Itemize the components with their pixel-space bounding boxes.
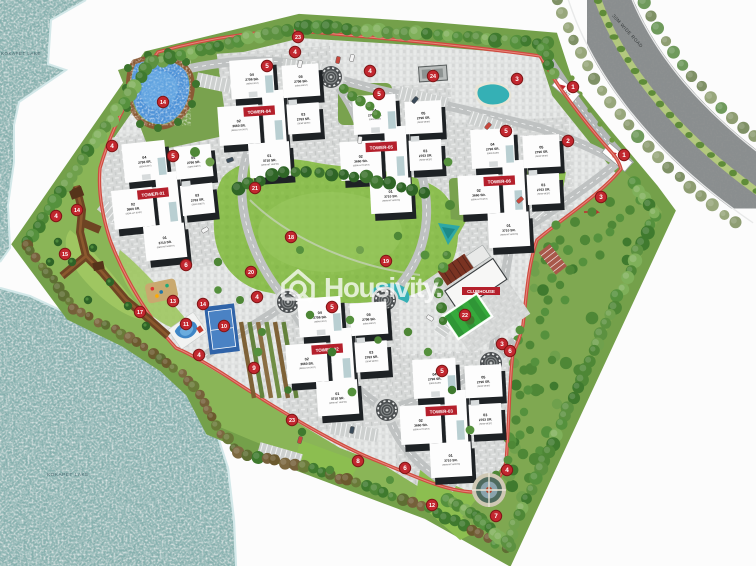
svg-text:14: 14 <box>160 100 166 106</box>
svg-text:2763 SR.: 2763 SR. <box>479 417 493 422</box>
svg-text:4: 4 <box>54 213 58 220</box>
svg-text:2: 2 <box>566 138 570 145</box>
svg-text:11: 11 <box>183 322 189 328</box>
svg-text:19: 19 <box>383 259 389 265</box>
svg-text:2796 SR.: 2796 SR. <box>417 116 431 121</box>
svg-text:3710 SR.: 3710 SR. <box>502 228 516 233</box>
svg-text:2763 SR.: 2763 SR. <box>419 153 433 158</box>
svg-text:5: 5 <box>171 153 175 160</box>
svg-text:22: 22 <box>462 313 468 319</box>
svg-text:CLUBHOUSE: CLUBHOUSE <box>467 289 495 294</box>
svg-text:2796 SR.: 2796 SR. <box>428 377 442 382</box>
svg-text:13: 13 <box>170 299 176 305</box>
svg-text:5: 5 <box>377 91 381 98</box>
svg-text:2796 SR.: 2796 SR. <box>486 147 500 152</box>
svg-text:3660 SR.: 3660 SR. <box>354 159 368 164</box>
svg-text:7: 7 <box>494 513 498 520</box>
svg-text:3: 3 <box>515 76 519 83</box>
svg-text:4: 4 <box>368 68 372 75</box>
svg-text:4: 4 <box>197 352 201 359</box>
svg-text:2796 SR.: 2796 SR. <box>477 380 491 385</box>
svg-text:14: 14 <box>74 208 80 214</box>
svg-text:3660 SR.: 3660 SR. <box>414 423 428 428</box>
svg-text:5: 5 <box>330 304 334 311</box>
svg-text:1: 1 <box>622 152 626 159</box>
svg-text:5: 5 <box>440 368 444 375</box>
svg-text:(SEMI EAST): (SEMI EAST) <box>487 151 500 155</box>
svg-text:8: 8 <box>356 458 360 465</box>
svg-text:24: 24 <box>430 74 436 80</box>
svg-text:KOKAPET LAKE: KOKAPET LAKE <box>47 472 89 477</box>
svg-text:5: 5 <box>504 128 508 135</box>
svg-text:18: 18 <box>288 235 294 241</box>
svg-text:23: 23 <box>295 35 301 41</box>
svg-text:21: 21 <box>252 186 258 192</box>
svg-text:20: 20 <box>248 270 254 276</box>
svg-text:3710 SR.: 3710 SR. <box>444 458 458 463</box>
svg-text:4: 4 <box>255 294 259 301</box>
svg-text:3: 3 <box>500 341 504 348</box>
svg-text:3660 SR.: 3660 SR. <box>472 193 486 198</box>
svg-text:6: 6 <box>508 348 512 355</box>
svg-text:6: 6 <box>403 465 407 472</box>
svg-text:(SEMI EAST): (SEMI EAST) <box>429 381 442 385</box>
svg-text:10: 10 <box>221 324 227 330</box>
svg-text:6: 6 <box>184 262 188 269</box>
svg-text:2763 SR.: 2763 SR. <box>537 187 551 192</box>
svg-text:1: 1 <box>571 84 575 91</box>
svg-text:4: 4 <box>110 143 114 150</box>
svg-text:12: 12 <box>429 503 435 509</box>
svg-text:3710 SR.: 3710 SR. <box>384 194 398 199</box>
svg-text:4: 4 <box>293 49 297 56</box>
svg-text:3: 3 <box>599 194 603 201</box>
svg-text:2796 SR.: 2796 SR. <box>535 150 549 155</box>
svg-text:23: 23 <box>289 418 295 424</box>
svg-text:9: 9 <box>252 365 256 372</box>
svg-text:4: 4 <box>505 467 509 474</box>
svg-text:5: 5 <box>265 63 269 70</box>
svg-text:17: 17 <box>137 310 143 316</box>
svg-text:Housivity.: Housivity. <box>324 272 442 303</box>
svg-text:15: 15 <box>62 252 68 258</box>
svg-text:KOKAPET LAKE: KOKAPET LAKE <box>1 51 41 56</box>
svg-text:14: 14 <box>200 302 206 308</box>
